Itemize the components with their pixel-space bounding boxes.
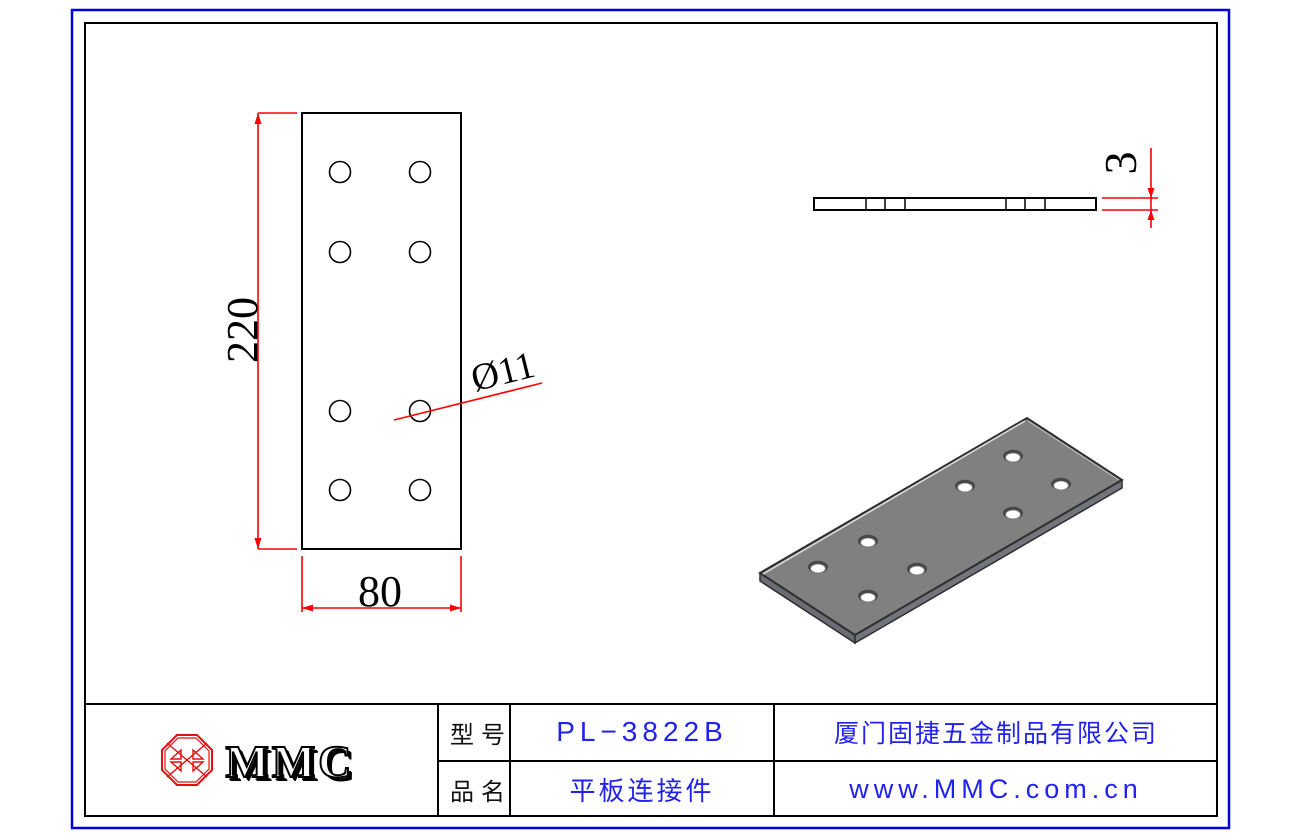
hole xyxy=(410,480,431,501)
outer-border xyxy=(72,10,1229,828)
iso-top-face xyxy=(760,418,1122,635)
hole xyxy=(410,162,431,183)
iso-hole xyxy=(808,561,828,573)
hole xyxy=(330,162,351,183)
hole xyxy=(330,480,351,501)
dim-3-lines xyxy=(1102,148,1158,228)
edge-outline xyxy=(814,198,1096,210)
drawing-sheet: 220 80 Ø11 3 MMC 型号 品名 PL−3822B 平板连接件 厦门… xyxy=(0,0,1300,840)
dim-220-lines xyxy=(255,113,298,549)
plate-outline xyxy=(302,113,461,549)
iso-hole xyxy=(907,563,927,575)
iso-view xyxy=(760,418,1122,643)
front-view-holes xyxy=(330,162,431,501)
front-view xyxy=(255,113,543,612)
dim-80-lines xyxy=(302,556,461,612)
mmc-octagon-icon xyxy=(162,735,212,785)
title-block-grid xyxy=(85,704,1217,816)
side-view xyxy=(814,148,1158,228)
iso-hole xyxy=(1003,450,1023,462)
edge-hole-projections xyxy=(866,198,1045,210)
hole xyxy=(410,242,431,263)
iso-hole xyxy=(1003,507,1023,519)
iso-hole xyxy=(1051,478,1071,490)
mmc-octagon-inner-x xyxy=(167,743,207,777)
cad-linework xyxy=(0,0,1300,840)
iso-hole xyxy=(858,590,878,602)
iso-hole xyxy=(955,480,975,492)
hole xyxy=(330,401,351,422)
hole xyxy=(330,242,351,263)
inner-border xyxy=(85,23,1217,816)
iso-hole xyxy=(858,535,878,547)
